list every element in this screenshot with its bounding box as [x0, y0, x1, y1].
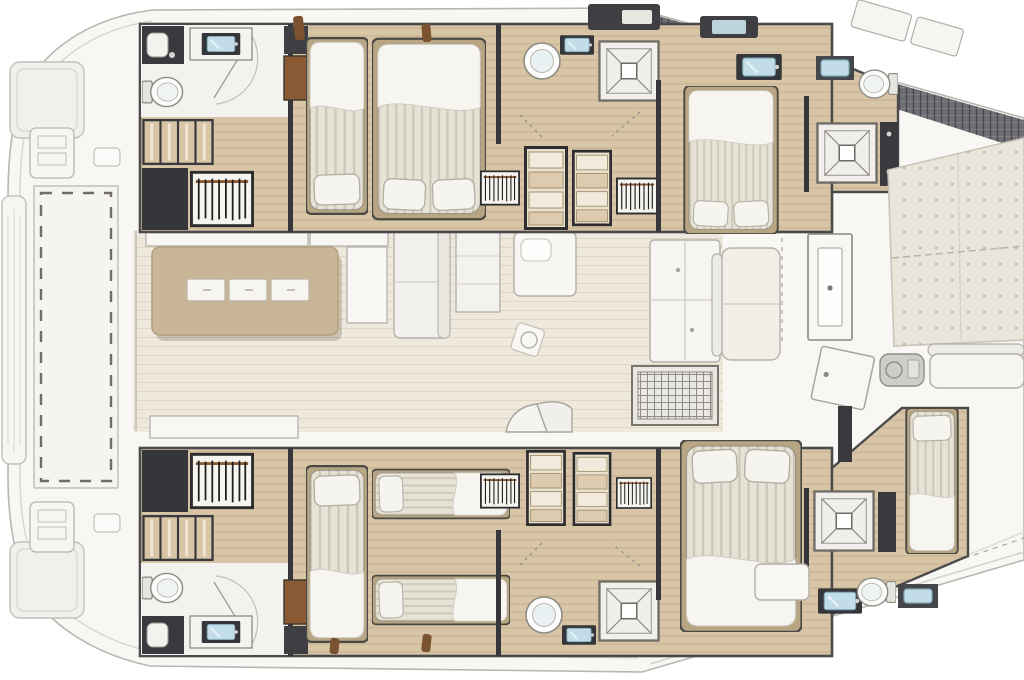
port-storage-shelf-1: [527, 451, 564, 524]
galley-cabinet-knob-1: [676, 268, 680, 272]
cooktop-grid: [638, 372, 712, 419]
starboard-fwd-double-bed: [372, 39, 486, 220]
port-fwd-wardrobe: [191, 454, 252, 507]
toilet-icon: [142, 77, 182, 106]
port-fwd-toilet: [142, 573, 182, 602]
cleat-bottom-2: [421, 634, 432, 653]
starboard-fwd-shower-drain: [169, 52, 175, 58]
port-storage-hangers-2: [617, 478, 651, 508]
bow-sunpad-top: [10, 62, 84, 138]
bed-icon: [306, 38, 368, 214]
starboard-fwd-wardrobe: [191, 172, 252, 225]
port-crew-berth: [906, 408, 958, 554]
aft-deck-locker: [755, 564, 809, 600]
galley-island-pad: [521, 239, 551, 261]
coachroof-locker-1: [851, 0, 913, 42]
port-aft-toilet: [857, 578, 896, 606]
port-fwd-shower-basin: [147, 623, 168, 647]
saloon-sofa-back: [438, 226, 450, 338]
starboard-wall-2: [496, 24, 501, 144]
port-mid-shower: [599, 581, 658, 640]
starboard-hull: [140, 24, 898, 234]
port-twin-bed-2: [372, 576, 510, 625]
toilet-icon: [859, 70, 898, 98]
toilet-icon: [142, 573, 182, 602]
cleat-top-2: [421, 24, 432, 43]
starboard-aft-basin: [821, 60, 849, 76]
floor-plan-stage: Top-down interior layout plan of a luxur…: [0, 0, 1024, 680]
skylight-head-glass: [712, 20, 746, 34]
sliding-door-handle: [827, 285, 832, 290]
port-fwd-cabinet: [142, 450, 188, 512]
starboard-aft-double-bed: [684, 86, 777, 234]
starboard-storage-shelf-2: [573, 151, 610, 225]
port-fwd-washbasin: [202, 621, 241, 643]
starboard-fwd-toilet: [142, 77, 182, 106]
bed-icon: [372, 576, 510, 625]
skylight-galley-glass: [622, 10, 652, 24]
starboard-aft-vanity: [736, 54, 782, 80]
port-aft-washbasin: [818, 588, 862, 613]
dinette-bench-right: [347, 247, 387, 323]
deck-hatch-bottom: [94, 514, 120, 532]
port-mid-washbasin: [562, 625, 596, 644]
starboard-wall-1: [288, 24, 293, 232]
starboard-mid-shower: [599, 41, 658, 100]
port-aft-shower: [814, 491, 873, 550]
port-wall-1: [288, 448, 293, 656]
starboard-forepeak-locker: [284, 56, 308, 100]
starboard-companion-steps: [143, 120, 212, 164]
bed-icon: [684, 86, 777, 234]
open-door-leaf: [811, 346, 875, 410]
aft-sofa-arm: [712, 254, 722, 356]
coachroof-lockers: [851, 0, 964, 57]
deck-hatch-top: [94, 148, 120, 166]
port-crew-basin: [904, 589, 932, 603]
starboard-fwd-shower-basin: [147, 33, 168, 57]
port-crew-wall: [838, 406, 852, 462]
port-aft-door: [878, 492, 896, 552]
aft-sunpad-dots: [888, 138, 1024, 346]
starboard-aft-door-hinge-1: [887, 132, 892, 137]
starboard-aft-shower: [817, 123, 876, 182]
aft-bench-seat: [930, 354, 1024, 388]
port-companion-steps: [143, 516, 212, 560]
grill-side-shelf: [908, 360, 919, 378]
starboard-fwd-washbasin: [202, 33, 241, 55]
port-wall-3: [656, 448, 661, 600]
port-forepeak-locker: [284, 580, 308, 624]
saloon-sideboard-bottom: [150, 416, 298, 438]
port-forepeak-berth: [306, 466, 368, 642]
starboard-fwd-cabinet: [142, 168, 188, 230]
toilet-icon: [857, 578, 896, 606]
port-wall-2: [496, 530, 501, 656]
door-leaf: [811, 346, 875, 410]
port-aft-double-bed: [680, 440, 801, 632]
port-storage-hangers-1: [481, 474, 519, 507]
starboard-storage-shelf-1: [526, 148, 567, 229]
starboard-storage-hangers-2: [617, 179, 657, 214]
cleat-bottom-1: [329, 638, 339, 655]
starboard-forepeak-berth: [306, 38, 368, 214]
trampoline-net: [34, 186, 118, 488]
starboard-aft-toilet: [859, 70, 898, 98]
bow-sunpad-bottom: [10, 542, 84, 618]
port-storage-shelf-2: [574, 453, 610, 524]
coachroof-locker-2: [910, 16, 964, 56]
port-mid-toilet-seat: [533, 604, 556, 627]
starboard-wall-3: [656, 80, 661, 232]
starboard-mid-toilet-seat: [531, 50, 554, 73]
starboard-wall-4: [804, 96, 809, 192]
port-forepeak-slab: [284, 626, 308, 654]
starboard-storage-hangers-1: [481, 171, 519, 204]
bed-icon: [372, 39, 486, 220]
saloon-cabinet: [456, 228, 500, 312]
starboard-mid-washbasin: [560, 35, 594, 54]
galley-cabinet-knob-2: [690, 328, 694, 332]
